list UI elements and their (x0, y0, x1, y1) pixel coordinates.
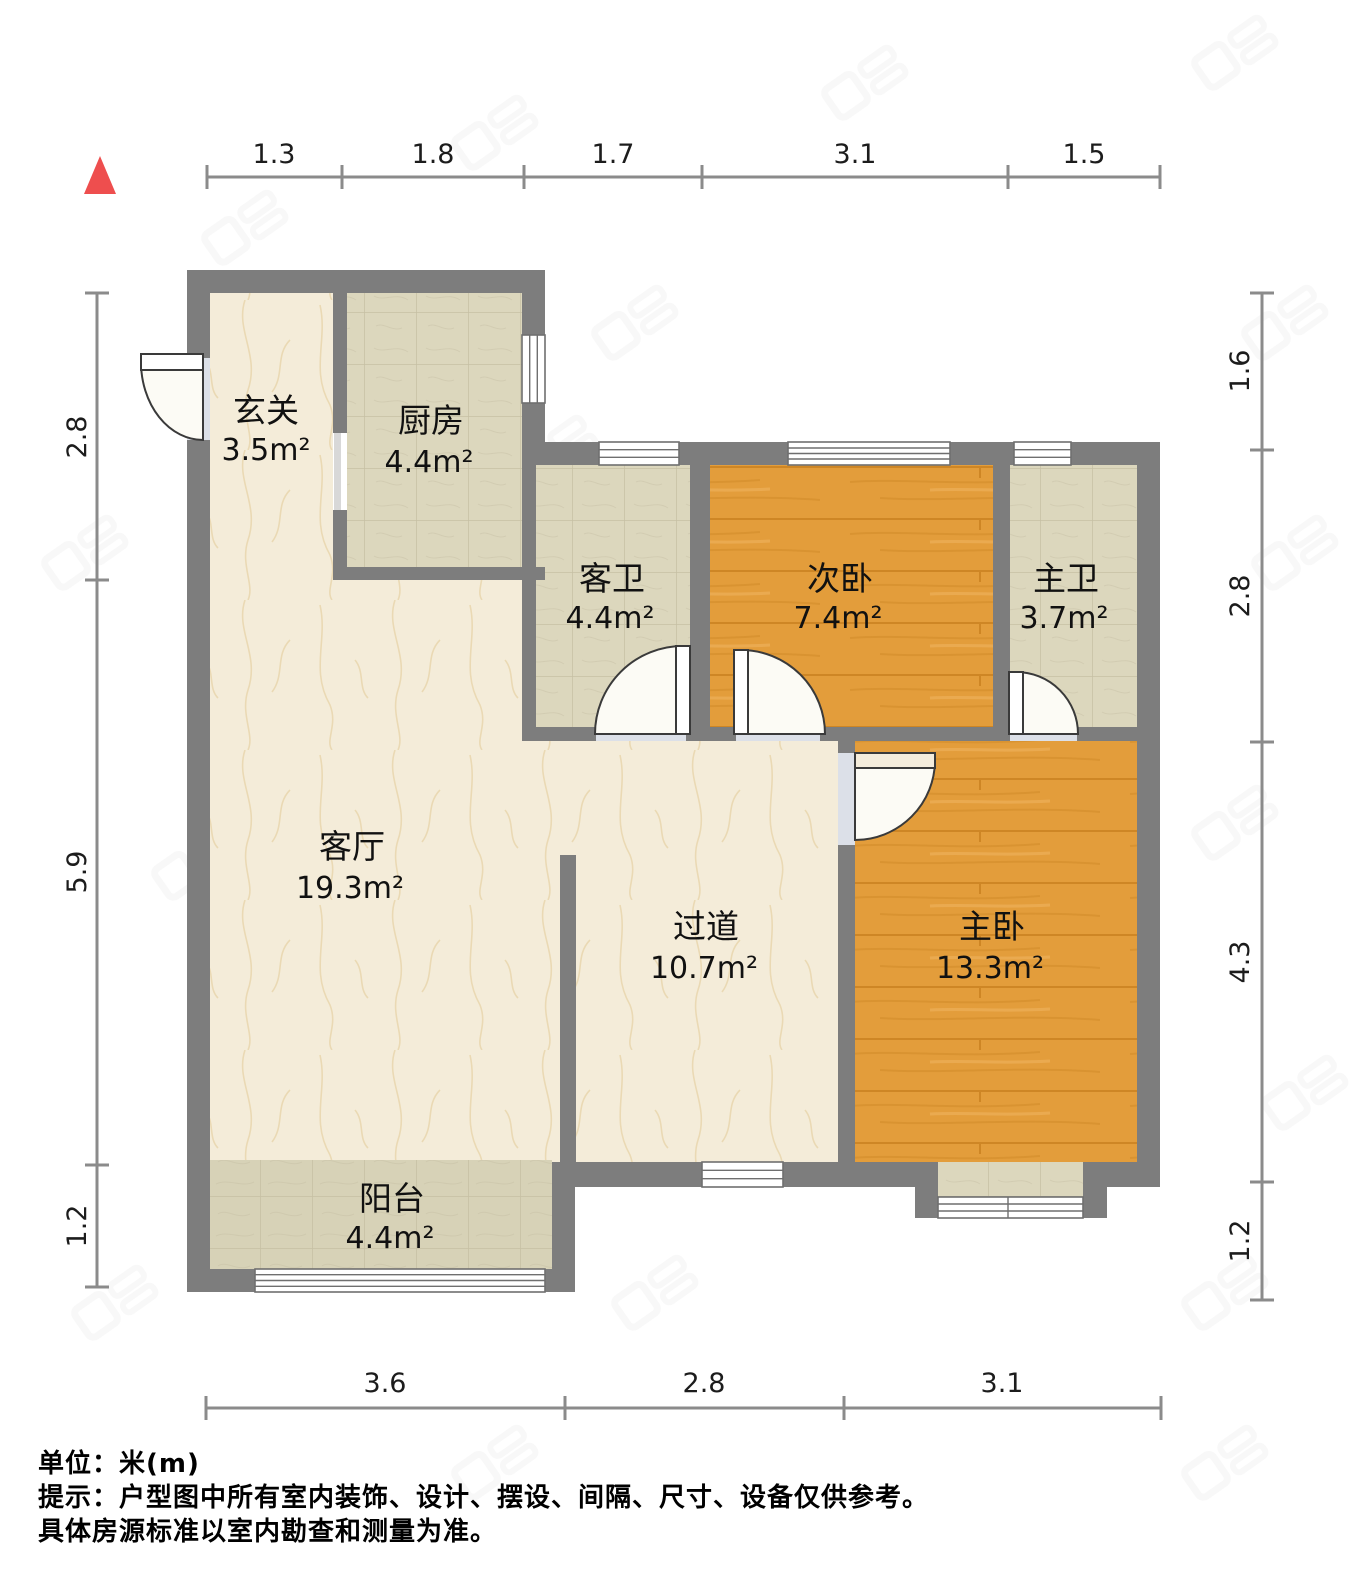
dim-top-4: 3.1 (834, 139, 877, 170)
dimension-top: 1.3 1.8 1.7 3.1 1.5 (207, 139, 1160, 189)
room-label-master-bath: 主卫 (1033, 559, 1099, 598)
bay-window (938, 1197, 1083, 1218)
room-area-foyer: 3.5m² (222, 433, 311, 468)
room-area-balcony: 4.4m² (346, 1221, 435, 1256)
master-bath-window (1014, 442, 1071, 465)
kitchen-window (522, 335, 545, 403)
dim-bottom-3: 3.1 (981, 1368, 1024, 1399)
dim-right-4: 1.2 (1225, 1220, 1256, 1263)
dim-left-1: 2.8 (62, 416, 93, 459)
unit-note: 单位：米(m) (38, 1443, 200, 1480)
dim-top-1: 1.3 (253, 139, 296, 170)
room-area-kitchen: 4.4m² (385, 445, 474, 480)
dim-right-3: 4.3 (1225, 941, 1256, 984)
room-label-second-bedroom: 次卧 (807, 559, 873, 598)
disclaimer-line-1: 提示：户型图中所有室内装饰、设计、摆设、间隔、尺寸、设备仅供参考。 (38, 1477, 929, 1514)
second-bedroom-window (788, 442, 950, 465)
dim-right-1: 1.6 (1225, 350, 1256, 393)
dim-top-5: 1.5 (1063, 139, 1106, 170)
dimension-bottom: 3.6 2.8 3.1 (206, 1368, 1161, 1420)
room-label-foyer: 玄关 (233, 391, 299, 430)
dim-top-2: 1.8 (412, 139, 455, 170)
dim-bottom-1: 3.6 (364, 1368, 407, 1399)
floorplan-page: 玄关 3.5m² 厨房 4.4m² 客卫 4.4m² 次卧 7.4m² 主卫 3… (0, 0, 1362, 1584)
dim-left-3: 1.2 (62, 1205, 93, 1248)
dim-top-3: 1.7 (592, 139, 635, 170)
dim-bottom-2: 2.8 (683, 1368, 726, 1399)
room-label-master-bedroom: 主卧 (959, 907, 1025, 946)
dim-right-2: 2.8 (1225, 575, 1256, 618)
room-label-kitchen: 厨房 (398, 401, 464, 440)
room-area-living-room: 19.3m² (296, 871, 404, 906)
balcony-window (255, 1269, 545, 1292)
room-area-guest-bath: 4.4m² (566, 601, 655, 636)
room-label-guest-bath: 客卫 (579, 559, 645, 598)
dim-left-2: 5.9 (62, 851, 93, 894)
dimension-left: 2.8 5.9 1.2 (62, 293, 109, 1287)
entry-door (141, 354, 210, 440)
guest-bath-window (599, 442, 679, 465)
floors (210, 293, 1137, 1269)
room-area-master-bath: 3.7m² (1020, 601, 1109, 636)
corridor-window (702, 1162, 783, 1187)
disclaimer-line-2: 具体房源标准以室内勘查和测量为准。 (38, 1511, 497, 1548)
north-marker-icon (84, 156, 116, 194)
room-label-living-room: 客厅 (319, 827, 385, 866)
room-area-corridor: 10.7m² (650, 951, 758, 986)
bay-window-sill (938, 1162, 1083, 1202)
room-area-master-bedroom: 13.3m² (936, 951, 1044, 986)
room-label-corridor: 过道 (673, 907, 739, 946)
room-label-balcony: 阳台 (359, 1179, 425, 1218)
room-area-second-bedroom: 7.4m² (794, 601, 883, 636)
floorplan-drawing: 玄关 3.5m² 厨房 4.4m² 客卫 4.4m² 次卧 7.4m² 主卫 3… (0, 0, 1362, 1584)
